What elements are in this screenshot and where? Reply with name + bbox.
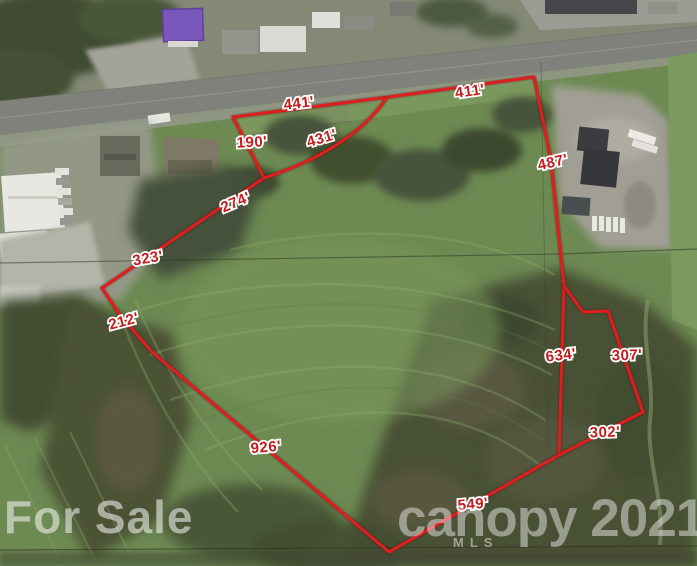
vehicle-cluster xyxy=(624,181,656,229)
warehouse-roofline xyxy=(8,196,58,199)
white-building xyxy=(260,26,306,52)
dark-roof-ridge xyxy=(104,154,136,160)
mls-brand-watermark: canopy 2021 xyxy=(397,489,697,548)
measurement-label-190: 190' xyxy=(236,133,267,152)
trailer-row xyxy=(592,216,625,233)
measurement-label-307: 307' xyxy=(611,346,642,364)
aerial-map: 441'411'190'431'274'487'323'212'634'307'… xyxy=(0,0,697,566)
far-gray-building xyxy=(390,2,416,16)
mls-sub-watermark: MLS xyxy=(453,535,498,550)
bottom-shadow-band xyxy=(0,552,697,566)
small-gray-building xyxy=(344,16,374,30)
aerial-photo-layer xyxy=(0,0,697,566)
aerial-property-screenshot: 441'411'190'431'274'487'323'212'634'307'… xyxy=(0,0,697,566)
gray-building xyxy=(222,30,258,54)
small-dark-building xyxy=(561,196,590,216)
small-white-building xyxy=(312,12,340,28)
large-white-warehouse xyxy=(1,172,65,232)
measurement-label-302: 302' xyxy=(589,423,620,441)
east-green-strip xyxy=(668,52,697,330)
measurement-label-926: 926' xyxy=(250,438,282,458)
dark-industrial-building-lower xyxy=(580,148,620,188)
purple-building-apron xyxy=(168,41,198,47)
for-sale-watermark: For Sale xyxy=(4,491,194,543)
purple-building xyxy=(162,8,203,41)
top-right-dark-roof xyxy=(545,0,637,14)
field-light-patch xyxy=(180,238,500,422)
top-right-small-roof xyxy=(648,2,678,14)
